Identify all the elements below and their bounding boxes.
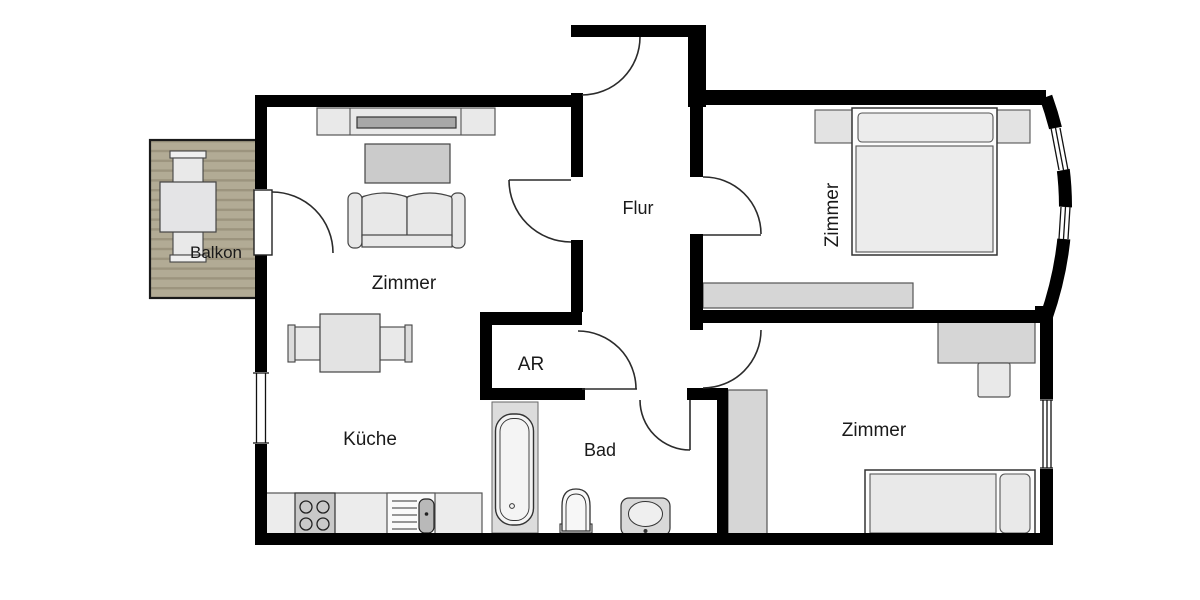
storage-door-arc <box>578 331 636 389</box>
sofa-cushion-curves <box>362 193 452 197</box>
wall-bottom <box>255 533 1052 545</box>
double-bed-mattress <box>856 146 993 252</box>
label-abstellraum: AR <box>518 354 544 375</box>
wall-rooms-divider <box>700 310 1037 323</box>
label-balkon: Balkon <box>190 243 242 262</box>
window-bay-upper <box>1051 128 1068 170</box>
nightstand-left <box>815 110 853 143</box>
wash-basin-faucet-dot <box>644 529 648 533</box>
label-kueche: Küche <box>343 429 397 450</box>
living-room-furniture <box>288 108 495 372</box>
wall-flur-left-upper <box>571 93 583 177</box>
entry-door-arc <box>582 37 640 95</box>
single-bed-pillow <box>1000 474 1030 533</box>
wall-flur-left-lower <box>571 240 583 312</box>
dining-chair-right <box>380 327 405 360</box>
floorplan-page: Balkon Zimmer Flur Zimmer AR Küche Bad Z… <box>0 0 1200 600</box>
balcony-chair-top-backrest <box>170 151 206 158</box>
label-wohnzimmer: Zimmer <box>372 273 437 294</box>
sofa-cushion-right <box>407 196 452 240</box>
single-bed-mattress <box>870 474 996 533</box>
bath-door <box>640 400 690 450</box>
coffee-table <box>365 144 450 183</box>
window-kitchen-left <box>253 372 269 444</box>
sofa-armrest-right <box>451 193 465 248</box>
window-bedroom-right <box>1039 399 1054 469</box>
dining-chair-right-backrest <box>405 325 412 362</box>
kitchen-furniture <box>265 493 482 535</box>
living-room-door <box>509 180 571 242</box>
balcony-door <box>254 189 333 255</box>
bathroom-fixtures <box>492 402 670 536</box>
label-bad: Bad <box>584 440 616 460</box>
wall-vestibule-top <box>571 25 706 37</box>
balcony-door-leaf <box>254 190 272 255</box>
dining-chair-left <box>295 327 320 360</box>
tv-icon <box>357 117 456 128</box>
double-bed-pillow <box>858 113 993 142</box>
sink-basin <box>419 499 434 533</box>
wall-top-right <box>700 90 1046 105</box>
bedroom-top-furniture <box>703 108 1030 308</box>
wall-bad-top <box>480 388 585 400</box>
wash-basin <box>629 502 663 527</box>
balcony-chair-top <box>173 158 203 183</box>
label-zimmer-unten: Zimmer <box>842 420 907 441</box>
wall-flur-right-upper <box>690 107 703 177</box>
wall-ar-left <box>480 312 492 400</box>
stove <box>295 493 335 535</box>
desk-chair <box>978 363 1010 397</box>
sofa-seat-band <box>362 235 452 247</box>
bath-door-arc <box>640 400 690 450</box>
sofa-cushion-left <box>362 196 407 240</box>
wall-ar-top <box>480 312 582 325</box>
wardrobe <box>728 390 767 537</box>
balcony <box>150 140 257 298</box>
wall-left <box>255 95 267 545</box>
bedroom-bottom-door-arc <box>703 330 761 388</box>
dining-table <box>320 314 380 372</box>
balcony-table <box>160 182 216 232</box>
living-room-door-arc <box>509 180 571 242</box>
sink-faucet-dot <box>425 512 429 516</box>
window-bay-lower <box>1059 207 1070 239</box>
balcony-door-arc <box>272 192 333 253</box>
storage-door <box>578 331 637 389</box>
bedroom-top-door-arc <box>703 177 761 234</box>
desk <box>938 318 1035 363</box>
wall-vestibule-right <box>688 25 706 107</box>
wall-top-left <box>255 95 578 107</box>
dining-chair-left-backrest <box>288 325 295 362</box>
label-flur: Flur <box>623 198 654 218</box>
bedroom-top-door <box>703 177 761 235</box>
label-schlafzimmer: Zimmer <box>822 182 843 247</box>
sideboard <box>703 283 913 308</box>
floorplan-drawing: Balkon Zimmer Flur Zimmer AR Küche Bad Z… <box>0 0 1200 600</box>
wall-bad-right <box>717 388 728 537</box>
bathtub <box>496 414 534 525</box>
sofa-armrest-left <box>348 193 362 248</box>
nightstand-right <box>997 110 1030 143</box>
